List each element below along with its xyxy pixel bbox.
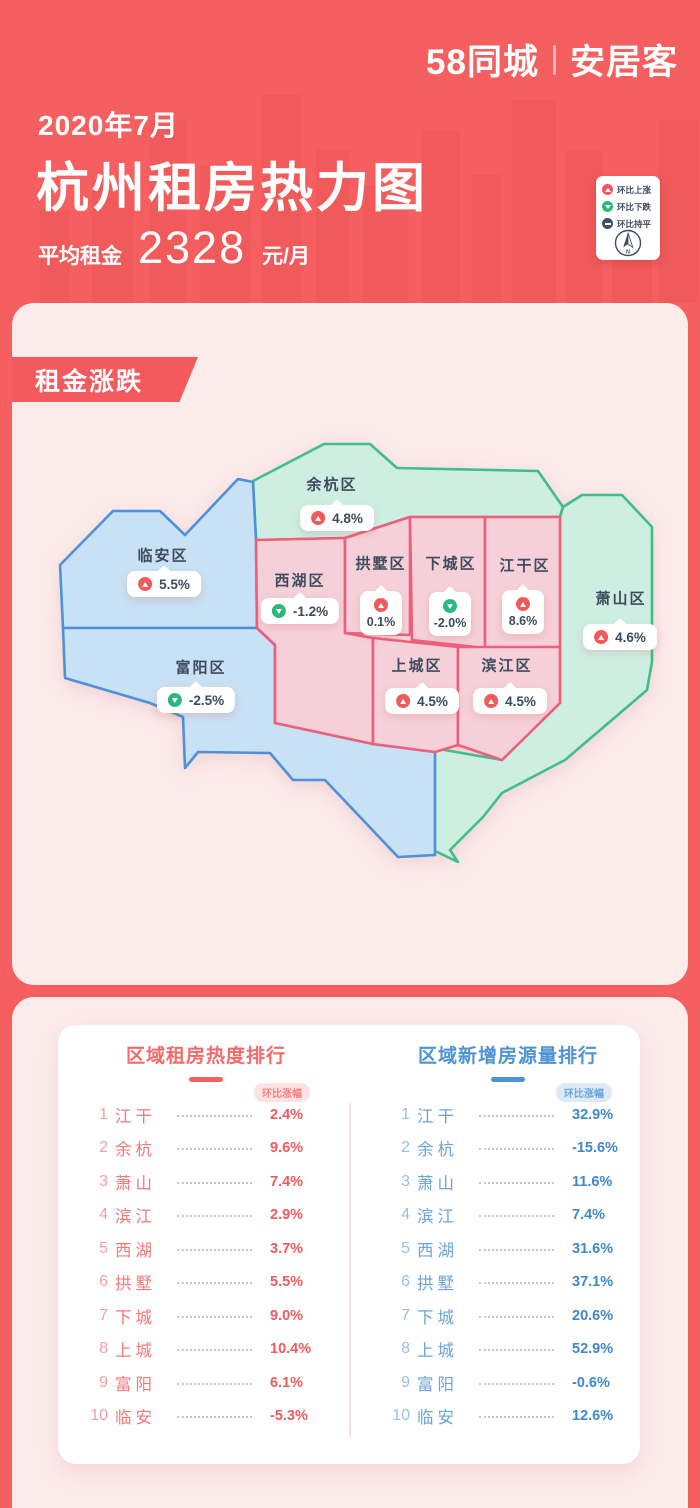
glyph — [520, 602, 526, 607]
change-value: -5.3% — [270, 1408, 326, 1424]
rank-row: 8上城10.4% — [86, 1340, 326, 1359]
glyph — [598, 635, 604, 640]
page-title: 杭州租房热力图 — [36, 146, 428, 222]
rank-row: 9富阳6.1% — [86, 1373, 326, 1392]
change-value: 52.9% — [572, 1341, 628, 1357]
region-label-xihu: 西湖区 — [274, 570, 325, 591]
district-name: 临安 — [417, 1404, 477, 1428]
down-arrow-icon — [272, 604, 286, 618]
region-label-linan: 临安区 — [137, 545, 188, 566]
rank-row: 6拱墅37.1% — [388, 1273, 628, 1292]
ranking-rows: 1江干32.9%2余杭-15.6%3萧山11.6%4滨江7.4%5西湖31.6%… — [388, 1105, 628, 1440]
rank-number: 6 — [388, 1273, 410, 1291]
change-value: 7.4% — [270, 1174, 326, 1190]
region-change-value: 4.5% — [505, 694, 536, 709]
leader-dots — [177, 1416, 252, 1418]
district-name: 西湖 — [115, 1237, 175, 1261]
leader-dots — [479, 1148, 554, 1150]
leader-dots — [177, 1182, 252, 1184]
region-change-value: 4.8% — [332, 511, 363, 526]
rank-number: 5 — [86, 1240, 108, 1258]
leader-dots — [479, 1383, 554, 1385]
region-label-yuhang: 余杭区 — [306, 474, 357, 495]
ranking-title: 区域租房热度排行 — [86, 1041, 326, 1068]
poster: 58同城 安居客 2020年7月 杭州租房热力图 平均租金 2328 元/月 环… — [0, 0, 700, 1508]
rank-number: 2 — [388, 1139, 410, 1157]
rankings-panel: 区域租房热度排行环比涨幅1江干2.4%2余杭9.6%3萧山7.4%4滨江2.9%… — [12, 997, 688, 1508]
district-name: 拱墅 — [115, 1270, 175, 1294]
average-rent: 平均租金 2328 元/月 — [38, 222, 310, 274]
glyph — [315, 516, 321, 521]
leader-dots — [177, 1282, 252, 1284]
region-change-value: 4.6% — [615, 630, 646, 645]
rank-number: 10 — [86, 1407, 108, 1425]
region-change-value: -1.2% — [293, 604, 328, 619]
legend-label: 环比上涨 — [617, 184, 651, 196]
leader-dots — [479, 1416, 554, 1418]
rank-row: 6拱墅5.5% — [86, 1273, 326, 1292]
district-name: 富阳 — [417, 1371, 477, 1395]
glyph — [605, 223, 611, 225]
up-arrow-icon — [602, 184, 613, 195]
rank-number: 1 — [86, 1106, 108, 1124]
district-name: 西湖 — [417, 1237, 477, 1261]
district-name: 临安 — [115, 1404, 175, 1428]
down-arrow-icon — [602, 201, 613, 212]
rank-number: 3 — [86, 1173, 108, 1191]
glyph — [378, 603, 384, 608]
change-value: 9.0% — [270, 1308, 326, 1324]
glyph — [276, 609, 282, 614]
rank-row: 2余杭9.6% — [86, 1139, 326, 1158]
rank-row: 10临安-5.3% — [86, 1407, 326, 1426]
change-value: 37.1% — [572, 1274, 628, 1290]
rank-number: 3 — [388, 1173, 410, 1191]
glyph — [488, 699, 494, 704]
rank-number: 4 — [388, 1206, 410, 1224]
region-label-shangcheng: 上城区 — [391, 655, 442, 676]
rank-row: 4滨江7.4% — [388, 1206, 628, 1225]
ranking-subtitle-badge: 环比涨幅 — [254, 1083, 310, 1102]
map-legend: 环比上涨环比下跌环比持平 N — [596, 176, 660, 260]
rank-row: 5西湖31.6% — [388, 1239, 628, 1258]
region-badge-jianggan: 8.6% — [502, 590, 544, 634]
change-value: 31.6% — [572, 1241, 628, 1257]
rank-number: 7 — [86, 1307, 108, 1325]
leader-dots — [479, 1349, 554, 1351]
legend-label: 环比下跌 — [617, 201, 651, 213]
district-name: 萧山 — [417, 1170, 477, 1194]
logo-anjuke: 安居客 — [570, 34, 678, 85]
region-badge-yuhang: 4.8% — [300, 505, 374, 531]
region-label-fuyang: 富阳区 — [175, 657, 226, 678]
up-arrow-icon — [396, 694, 410, 708]
column-divider — [349, 1103, 351, 1438]
leader-dots — [177, 1215, 252, 1217]
rank-number: 4 — [86, 1206, 108, 1224]
change-value: 2.9% — [270, 1207, 326, 1223]
change-value: 5.5% — [270, 1274, 326, 1290]
district-name: 江干 — [115, 1103, 175, 1127]
region-label-xiaoshan: 萧山区 — [595, 588, 646, 609]
region-label-xiacheng: 下城区 — [425, 553, 476, 574]
title-underline — [491, 1077, 525, 1082]
region-change-value: 8.6% — [509, 614, 538, 628]
up-arrow-icon — [594, 630, 608, 644]
district-name: 富阳 — [115, 1371, 175, 1395]
rank-number: 9 — [388, 1374, 410, 1392]
glyph — [172, 698, 178, 703]
region-label-gongshu: 拱墅区 — [355, 553, 406, 574]
region-badge-fuyang: -2.5% — [157, 687, 235, 713]
district-name: 滨江 — [417, 1203, 477, 1227]
rankings-card: 区域租房热度排行环比涨幅1江干2.4%2余杭9.6%3萧山7.4%4滨江2.9%… — [58, 1025, 640, 1464]
district-name: 滨江 — [115, 1203, 175, 1227]
rank-row: 4滨江2.9% — [86, 1206, 326, 1225]
district-name: 上城 — [115, 1337, 175, 1361]
district-name: 下城 — [115, 1304, 175, 1328]
leader-dots — [177, 1115, 252, 1117]
change-value: 32.9% — [572, 1107, 628, 1123]
up-arrow-icon — [311, 511, 325, 525]
district-name: 萧山 — [115, 1170, 175, 1194]
district-name: 上城 — [417, 1337, 477, 1361]
change-value: 3.7% — [270, 1241, 326, 1257]
logo-divider — [553, 45, 556, 75]
leader-dots — [479, 1282, 554, 1284]
up-arrow-icon — [138, 577, 152, 591]
rank-number: 6 — [86, 1273, 108, 1291]
change-value: 10.4% — [270, 1341, 326, 1357]
region-badge-xiaoshan: 4.6% — [583, 624, 657, 650]
up-arrow-icon — [516, 597, 530, 611]
rank-number: 2 — [86, 1139, 108, 1157]
down-arrow-icon — [168, 693, 182, 707]
change-value: -0.6% — [572, 1375, 628, 1391]
average-rent-label: 平均租金 — [38, 240, 122, 270]
rank-number: 5 — [388, 1240, 410, 1258]
rank-number: 10 — [388, 1407, 410, 1425]
up-arrow-icon — [374, 598, 388, 612]
district-name: 余杭 — [115, 1136, 175, 1160]
ranking-title: 区域新增房源量排行 — [388, 1041, 628, 1068]
rank-row: 7下城20.6% — [388, 1306, 628, 1325]
region-change-value: -2.5% — [189, 693, 224, 708]
glyph — [605, 205, 611, 209]
change-value: 7.4% — [572, 1207, 628, 1223]
rank-row: 5西湖3.7% — [86, 1239, 326, 1258]
brand-logo: 58同城 安居客 — [426, 34, 678, 85]
rank-number: 1 — [388, 1106, 410, 1124]
ranking-column-heat: 区域租房热度排行环比涨幅1江干2.4%2余杭9.6%3萧山7.4%4滨江2.9%… — [86, 1041, 326, 1082]
rank-row: 2余杭-15.6% — [388, 1139, 628, 1158]
change-value: 2.4% — [270, 1107, 326, 1123]
region-change-value: 5.5% — [159, 577, 190, 592]
region-badge-linan: 5.5% — [127, 571, 201, 597]
change-value: 12.6% — [572, 1408, 628, 1424]
district-name: 江干 — [417, 1103, 477, 1127]
legend-items: 环比上涨环比下跌环比持平 — [602, 182, 660, 231]
region-change-value: 0.1% — [367, 615, 396, 629]
change-value: 11.6% — [572, 1174, 628, 1190]
region-change-value: 4.5% — [417, 694, 448, 709]
rank-row: 3萧山11.6% — [388, 1172, 628, 1191]
district-name: 下城 — [417, 1304, 477, 1328]
ranking-subtitle-badge: 环比涨幅 — [556, 1083, 612, 1102]
map-overlays: 余杭区4.8%临安区5.5%西湖区-1.2%拱墅区0.1%下城区-2.0%江干区… — [12, 303, 688, 985]
average-rent-unit: 元/月 — [262, 240, 310, 270]
rank-row: 1江干2.4% — [86, 1105, 326, 1124]
legend-item-up: 环比上涨 — [602, 182, 660, 197]
title-underline — [189, 1077, 223, 1082]
glyph — [605, 188, 611, 192]
ranking-column-supply: 区域新增房源量排行环比涨幅1江干32.9%2余杭-15.6%3萧山11.6%4滨… — [388, 1041, 628, 1082]
region-change-value: -2.0% — [434, 616, 467, 630]
region-badge-xiacheng: -2.0% — [429, 592, 471, 636]
rank-number: 8 — [388, 1340, 410, 1358]
glyph — [142, 582, 148, 587]
rank-number: 8 — [86, 1340, 108, 1358]
change-value: 9.6% — [270, 1140, 326, 1156]
district-name: 拱墅 — [417, 1270, 477, 1294]
rank-number: 7 — [388, 1307, 410, 1325]
leader-dots — [177, 1148, 252, 1150]
legend-item-down: 环比下跌 — [602, 199, 660, 214]
up-arrow-icon — [484, 694, 498, 708]
rank-row: 10临安12.6% — [388, 1407, 628, 1426]
logo-58tongcheng: 58同城 — [426, 34, 539, 85]
region-badge-binjiang: 4.5% — [473, 688, 547, 714]
rank-row: 9富阳-0.6% — [388, 1373, 628, 1392]
district-name: 余杭 — [417, 1136, 477, 1160]
glyph — [400, 699, 406, 704]
rank-number: 9 — [86, 1374, 108, 1392]
rank-row: 1江干32.9% — [388, 1105, 628, 1124]
glyph — [447, 604, 453, 609]
leader-dots — [479, 1215, 554, 1217]
compass-icon: N — [613, 228, 643, 258]
region-badge-shangcheng: 4.5% — [385, 688, 459, 714]
change-value: -15.6% — [572, 1140, 628, 1156]
rent-map-panel: 租金涨跌 余杭区4.8%临安区5.5%西湖区-1.2%拱墅区0.1%下城区-2.… — [12, 303, 688, 985]
flat-arrow-icon — [602, 218, 613, 229]
average-rent-value: 2328 — [138, 222, 246, 274]
rank-row: 3萧山7.4% — [86, 1172, 326, 1191]
leader-dots — [479, 1249, 554, 1251]
rank-row: 7下城9.0% — [86, 1306, 326, 1325]
leader-dots — [177, 1383, 252, 1385]
region-badge-xihu: -1.2% — [261, 598, 339, 624]
region-badge-gongshu: 0.1% — [360, 591, 402, 635]
leader-dots — [177, 1249, 252, 1251]
leader-dots — [177, 1316, 252, 1318]
compass-n-label: N — [626, 250, 630, 256]
ranking-rows: 1江干2.4%2余杭9.6%3萧山7.4%4滨江2.9%5西湖3.7%6拱墅5.… — [86, 1105, 326, 1440]
leader-dots — [479, 1115, 554, 1117]
leader-dots — [479, 1182, 554, 1184]
region-label-binjiang: 滨江区 — [481, 655, 532, 676]
leader-dots — [177, 1349, 252, 1351]
change-value: 6.1% — [270, 1375, 326, 1391]
leader-dots — [479, 1316, 554, 1318]
rank-row: 8上城52.9% — [388, 1340, 628, 1359]
down-arrow-icon — [443, 599, 457, 613]
region-label-jianggan: 江干区 — [499, 555, 550, 576]
change-value: 20.6% — [572, 1308, 628, 1324]
report-date: 2020年7月 — [38, 104, 179, 144]
